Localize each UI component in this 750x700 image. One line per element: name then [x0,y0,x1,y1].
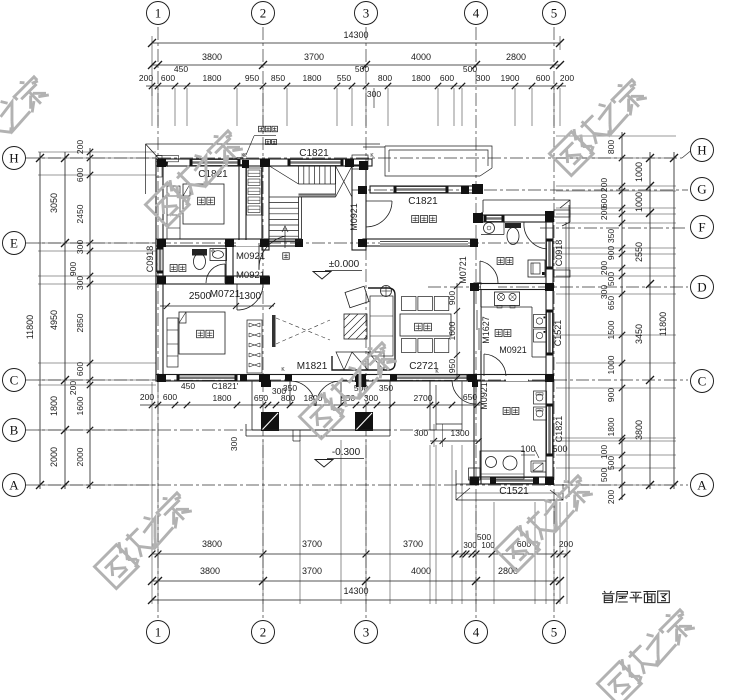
svg-text:300: 300 [229,437,239,451]
svg-text:C1521: C1521 [499,486,529,497]
svg-text:500: 500 [599,468,609,482]
svg-text:200: 200 [599,178,609,192]
svg-text:1: 1 [155,624,162,639]
svg-text:3800: 3800 [200,566,220,576]
svg-text:450: 450 [181,381,195,391]
svg-text:900: 900 [68,262,78,276]
svg-text:M0921: M0921 [349,203,359,231]
svg-text:3050: 3050 [49,193,59,213]
svg-text:600: 600 [163,392,177,402]
svg-text:H: H [9,150,18,165]
svg-text:450: 450 [174,64,188,74]
svg-text:1600: 1600 [75,396,85,415]
svg-text:2850: 2850 [75,313,85,332]
svg-text:200: 200 [560,73,574,83]
svg-text:1300: 1300 [451,428,470,438]
svg-text:M1821: M1821 [297,361,328,372]
svg-text:200: 200 [559,539,573,549]
svg-text:4000: 4000 [411,566,431,576]
svg-text:C: C [698,373,707,388]
svg-text:1500: 1500 [606,320,616,339]
svg-text:1900: 1900 [501,73,520,83]
svg-text:M0921: M0921 [479,382,489,410]
svg-text:4: 4 [473,5,480,20]
svg-text:11800: 11800 [25,315,35,339]
svg-text:2000: 2000 [75,447,85,466]
svg-text:900: 900 [447,291,457,305]
svg-text:2: 2 [260,624,267,639]
svg-text:200: 200 [68,381,78,395]
svg-text:1000: 1000 [634,192,644,212]
svg-text:2000: 2000 [49,447,59,467]
svg-text:4000: 4000 [411,52,431,62]
svg-text:2450: 2450 [75,204,85,223]
svg-text:A: A [697,477,707,492]
svg-text:C0918: C0918 [145,246,155,273]
svg-text:3: 3 [363,5,370,20]
svg-text:C1821': C1821' [212,381,239,391]
svg-text:650: 650 [463,392,477,402]
svg-text:H: H [697,142,706,157]
svg-text:3700: 3700 [403,539,423,549]
svg-text:200: 200 [606,490,616,504]
svg-text:350: 350 [606,229,616,243]
svg-text:1600: 1600 [447,321,457,340]
svg-text:1800: 1800 [213,393,232,403]
svg-text:C1521: C1521 [553,320,563,347]
svg-text:C: C [10,372,19,387]
svg-text:3: 3 [363,624,370,639]
svg-text:350: 350 [379,383,393,393]
svg-text:C1821: C1821 [408,196,438,207]
svg-text:300: 300 [463,541,477,550]
svg-text:3700: 3700 [302,539,322,549]
svg-text:850: 850 [271,73,285,83]
svg-text:300: 300 [75,240,85,254]
svg-text:4: 4 [473,624,480,639]
svg-text:2800: 2800 [506,52,526,62]
svg-text:3800: 3800 [634,420,644,440]
svg-text:5: 5 [551,5,558,20]
svg-text:C1821: C1821 [299,148,329,159]
svg-text:950: 950 [447,359,457,373]
svg-text:800: 800 [378,73,392,83]
svg-text:100: 100 [520,444,535,454]
svg-text:±0.000: ±0.000 [329,259,360,270]
svg-text:300: 300 [364,393,378,403]
svg-text:2550: 2550 [634,242,644,262]
svg-text:4950: 4950 [49,310,59,330]
svg-text:M0721: M0721 [210,289,241,300]
svg-text:950: 950 [245,73,259,83]
svg-text:-0.300: -0.300 [332,447,361,458]
svg-text:1300: 1300 [239,291,262,302]
svg-text:5: 5 [551,624,558,639]
svg-text:3800: 3800 [202,52,222,62]
svg-text:1800: 1800 [303,73,322,83]
svg-text:1800: 1800 [49,396,59,416]
svg-text:1000: 1000 [606,355,616,374]
svg-text:14300: 14300 [343,586,368,596]
svg-text:200: 200 [139,73,153,83]
svg-text:800: 800 [281,393,295,403]
svg-text:14300: 14300 [343,30,368,40]
svg-text:3450: 3450 [634,324,644,344]
svg-text:M0921: M0921 [236,270,265,281]
svg-text:3700: 3700 [304,52,324,62]
svg-text:M0721: M0721 [458,256,468,284]
svg-text:M0921: M0921 [499,345,527,355]
svg-text:B: B [10,422,19,437]
svg-text:800: 800 [606,140,616,154]
svg-text:600: 600 [440,73,454,83]
svg-text:D: D [697,279,706,294]
svg-text:600: 600 [161,73,175,83]
svg-text:1800: 1800 [203,73,222,83]
svg-text:600: 600 [75,362,85,376]
svg-text:A: A [9,477,19,492]
svg-text:F: F [698,219,705,234]
svg-text:300: 300 [476,73,490,83]
svg-text:1800: 1800 [606,417,616,436]
svg-text:3800: 3800 [202,539,222,549]
svg-text:2: 2 [260,5,267,20]
svg-text:2500: 2500 [189,291,212,302]
svg-text:100: 100 [481,541,495,550]
svg-text:3700: 3700 [302,566,322,576]
svg-text:C0918: C0918 [554,240,564,267]
svg-text:650: 650 [254,393,268,403]
svg-text:300: 300 [75,276,85,290]
svg-text:650: 650 [606,296,616,310]
svg-text:550: 550 [337,73,351,83]
svg-text:G: G [697,181,706,196]
svg-text:1: 1 [155,5,162,20]
svg-text:M1627: M1627 [481,316,491,344]
svg-text:C1821: C1821 [554,416,564,443]
svg-text:1800: 1800 [412,73,431,83]
svg-text:11800: 11800 [658,312,668,336]
svg-text:1000: 1000 [634,162,644,182]
svg-text:M0921: M0921 [236,251,265,262]
svg-text:900: 900 [606,388,616,402]
svg-text:500: 500 [552,444,567,454]
svg-text:300: 300 [414,428,428,438]
svg-text:500: 500 [606,272,616,286]
svg-text:600: 600 [536,73,550,83]
svg-text:500: 500 [355,64,369,74]
svg-text:E: E [10,235,18,250]
